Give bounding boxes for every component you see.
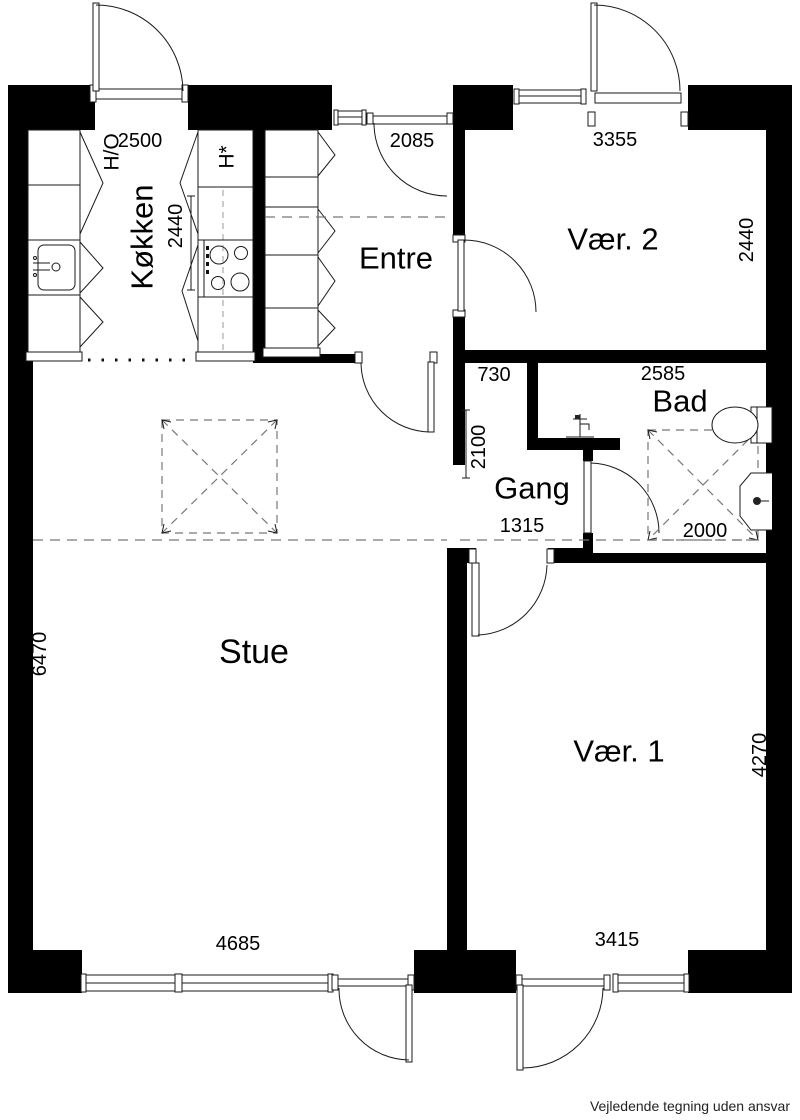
dim-vaer1-depth: 4270 xyxy=(749,733,771,778)
wall-bad-south xyxy=(593,553,766,563)
dim-kokken-width: 2500 xyxy=(118,130,163,152)
wall-bad-north xyxy=(453,350,766,363)
wall-bottom-a xyxy=(8,950,82,993)
dim-kokken-depth: 2440 xyxy=(165,204,187,249)
wall-kokken-entre xyxy=(253,130,265,357)
dim-bad-inner-width: 2000 xyxy=(683,520,728,542)
window-stue xyxy=(81,974,333,992)
window-top-small xyxy=(334,110,366,125)
dim-gang-width: 1315 xyxy=(500,515,545,537)
wall-niche-stub xyxy=(527,352,538,450)
room-label-entre: Entre xyxy=(359,241,433,276)
entre-wardrobe xyxy=(263,130,335,357)
room-label-kokken: Køkken xyxy=(125,184,160,289)
wall-right xyxy=(766,85,792,993)
wall-entre-vaer2-upper xyxy=(453,130,465,235)
door-vaer1-balcony xyxy=(516,975,610,1070)
wall-entre-vaer2-lower xyxy=(453,317,465,465)
dim-bad-width: 2585 xyxy=(641,363,686,385)
door-entre-gang xyxy=(355,352,437,432)
dim-vaer2-depth: 2440 xyxy=(736,218,758,263)
room-label-vaer2: Vær. 2 xyxy=(567,222,658,257)
doors xyxy=(90,3,688,1070)
dim-vaer1-width: 3415 xyxy=(595,929,640,951)
label-appliance: H* xyxy=(216,145,239,168)
door-kitchen-exterior xyxy=(90,3,188,102)
dim-gang-length: 2100 xyxy=(468,425,490,470)
labels: 2500 Køkken 2440 H/O H* 2085 Entre 3355 … xyxy=(29,129,790,1114)
wall-baddoor-post-top xyxy=(583,450,593,461)
wall-baddoor-post-bottom xyxy=(583,533,593,563)
room-label-gang: Gang xyxy=(494,471,570,506)
door-stue-balcony xyxy=(332,975,414,1062)
wall-top-b xyxy=(188,85,332,130)
wall-top-c xyxy=(453,85,513,130)
window-vaer1 xyxy=(613,974,689,992)
room-label-vaer1: Vær. 1 xyxy=(573,734,664,769)
dim-niche-width: 730 xyxy=(477,364,510,386)
bathroom-fixtures xyxy=(566,407,772,540)
dim-entre-width: 2085 xyxy=(390,130,435,152)
door-entre-exterior xyxy=(367,113,453,196)
ceiling-hatch-area-stue xyxy=(162,420,277,533)
label-fridge-oven: H/O xyxy=(101,133,124,170)
dim-stue-width: 4685 xyxy=(216,933,261,955)
wall-bad-l xyxy=(533,438,620,450)
dim-vaer2-width: 3355 xyxy=(593,129,638,151)
wall-stue-vaer1 xyxy=(447,548,467,952)
toilet-icon xyxy=(712,407,772,443)
door-gang-vaer1 xyxy=(469,549,554,636)
floor-plan-drawing: 2500 Køkken 2440 H/O H* 2085 Entre 3355 … xyxy=(0,0,800,1120)
room-label-bad: Bad xyxy=(652,384,707,419)
washbasin-icon xyxy=(740,473,772,530)
door-entre-vaer2 xyxy=(453,235,536,317)
floor-plan-page: 2500 Køkken 2440 H/O H* 2085 Entre 3355 … xyxy=(0,0,800,1120)
door-vaer2-exterior xyxy=(588,3,688,126)
wall-bottom-b xyxy=(414,950,516,993)
window-vaer2 xyxy=(514,89,586,104)
wall-bottom-c xyxy=(688,950,792,993)
room-label-stue: Stue xyxy=(219,633,289,671)
dim-stue-depth: 6470 xyxy=(29,632,51,677)
disclaimer-text: Vejledende tegning uden ansvar xyxy=(590,1098,790,1114)
faucet-icon xyxy=(566,414,594,437)
